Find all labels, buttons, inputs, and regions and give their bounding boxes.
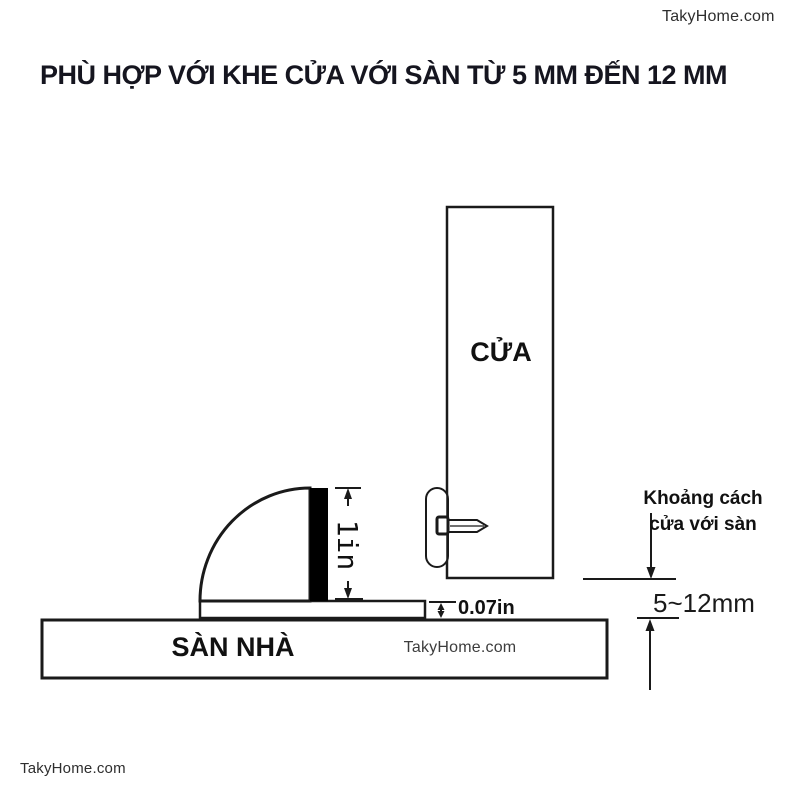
site-credit-top-right: TakyHome.com <box>662 8 775 26</box>
gap-annotation-line1: Khoảng cách <box>628 486 778 512</box>
door-label: CỬA <box>451 337 551 368</box>
stopper-height-dimension-label: 1in <box>332 515 362 575</box>
dimension-007in-arrows <box>429 602 456 618</box>
floor-slab-shape <box>42 620 607 678</box>
site-credit-bottom-left: TakyHome.com <box>20 760 126 777</box>
base-thickness-dimension-label: 0.07in <box>458 597 515 620</box>
page-title: PHÙ HỢP VỚI KHE CỬA VỚI SÀN TỪ 5 MM ĐẾN … <box>40 60 740 91</box>
gap-annotation: Khoảng cách cửa với sàn <box>628 486 778 538</box>
stopper-base-plate-shape <box>200 601 425 618</box>
gap-annotation-line2: cửa với sàn <box>628 512 778 538</box>
gap-range-label: 5~12mm <box>653 588 755 619</box>
stopper-rubber-bar-shape <box>310 488 328 601</box>
site-credit-floor-watermark: TakyHome.com <box>400 639 520 657</box>
stopper-body-shape <box>200 488 310 601</box>
floor-label: SÀN NHÀ <box>158 632 308 663</box>
product-diagram-page: TakyHome.com PHÙ HỢP VỚI KHE CỬA VỚI SÀN… <box>0 0 800 800</box>
door-stopper-diagram <box>0 0 800 800</box>
